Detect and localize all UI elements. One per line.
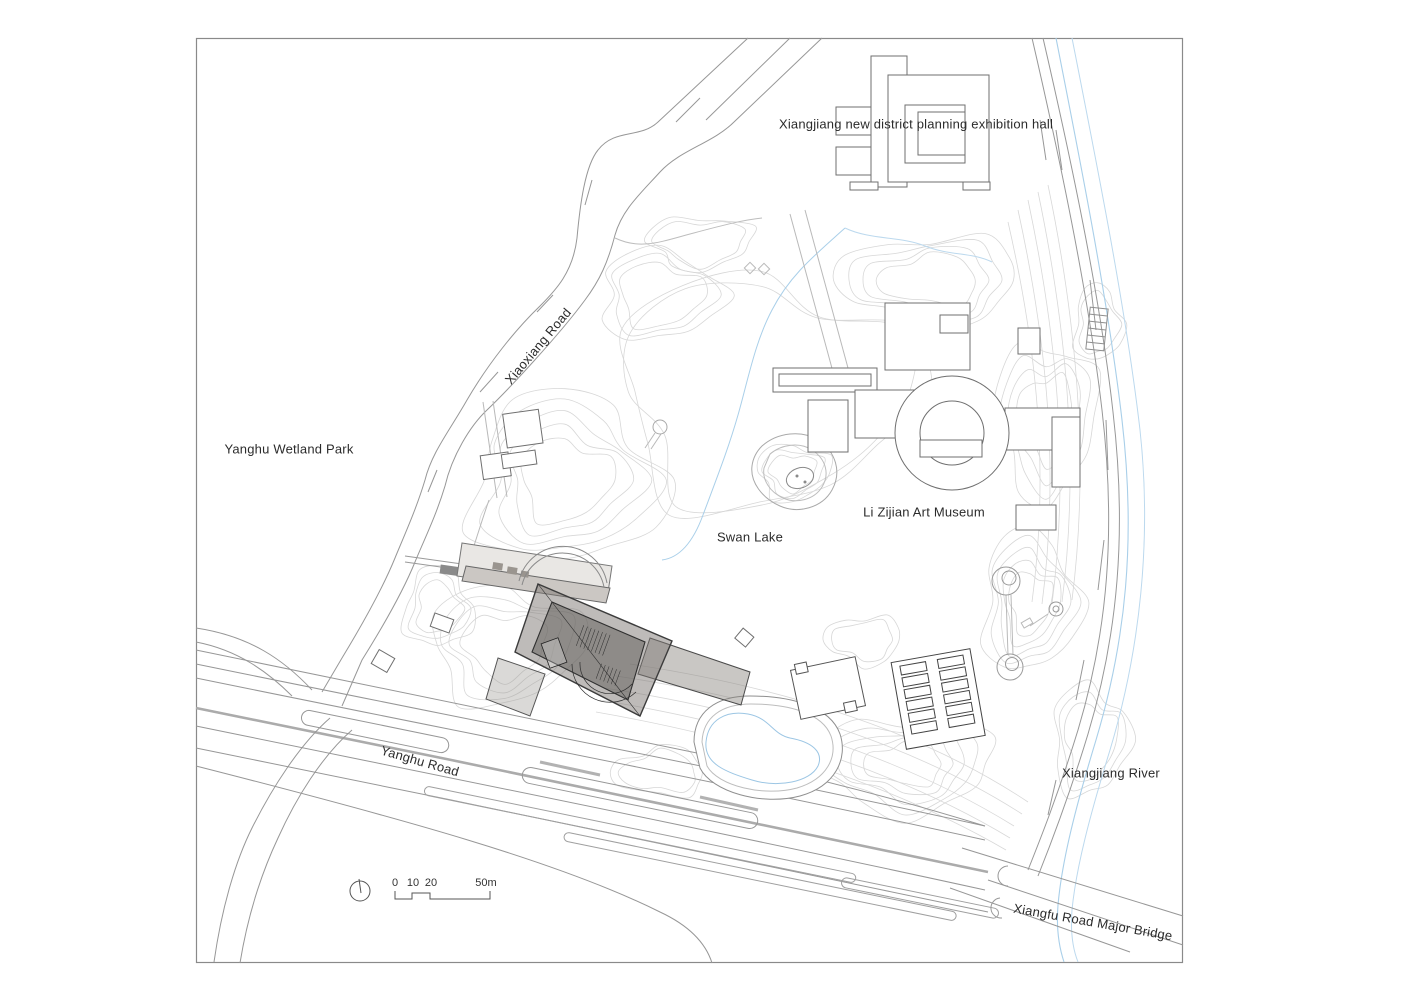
scale-tick: 0	[392, 877, 398, 889]
label-li-zijian-art-museum: Li Zijian Art Museum	[863, 505, 985, 520]
scale-tick: 20	[425, 877, 437, 889]
scale-tick: 50m	[475, 877, 496, 889]
label-exhibition-hall: Xiangjiang new district planning exhibit…	[779, 117, 1053, 132]
scale-tick: 10	[407, 877, 419, 889]
site-plan-canvas: 0 10 20 50m Xiangjiang new district plan…	[0, 0, 1415, 1000]
label-yanghu-wetland-park: Yanghu Wetland Park	[224, 442, 353, 457]
site-plan-drawing: 0 10 20 50m	[0, 0, 1415, 1000]
label-swan-lake: Swan Lake	[717, 530, 783, 545]
parking-structure	[891, 649, 985, 750]
label-xiangjiang-river: Xiangjiang River	[1062, 766, 1160, 781]
drawing-border	[197, 39, 1183, 963]
